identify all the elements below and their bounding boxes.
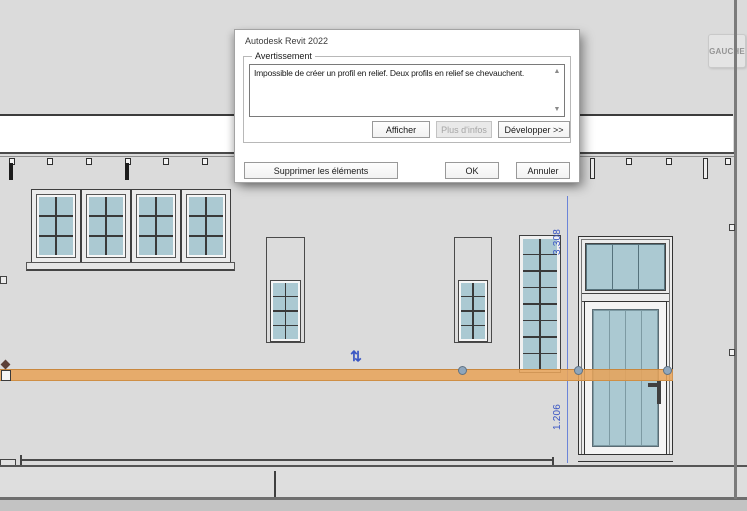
door-threshold [578,454,673,462]
sweep-endpoint-marker[interactable] [1,360,11,370]
sweep-grip-dot[interactable] [574,366,583,375]
glass-pane [89,197,105,215]
glass-pane [639,245,664,289]
glass-pane [541,305,557,320]
ok-button[interactable]: OK [445,162,499,179]
glass-pane [107,197,123,215]
line-clip [729,349,735,356]
door-transom [585,243,666,291]
glass-pane [541,321,557,336]
glass-pane [286,312,298,325]
warning-message-box[interactable]: Impossible de créer un profil en relief.… [249,64,565,117]
glass-pane [157,217,173,235]
narrow-window-right[interactable] [454,237,492,343]
window-sash [86,194,126,258]
glass-pane [189,237,205,255]
glass-pane [273,312,285,325]
warning-message-text: Impossible de créer un profil en relief.… [254,68,548,78]
glass-pane [107,237,123,255]
window-sill [26,262,235,271]
line-clip [729,224,735,231]
ground-band [0,500,747,511]
glass-pane [207,237,223,255]
window-unit[interactable] [31,189,81,263]
glass-pane [541,288,557,303]
glass-pane [541,338,557,353]
gutter-bracket[interactable] [725,158,731,165]
gutter-bracket[interactable] [202,158,208,165]
gutter-bracket[interactable] [163,158,169,165]
window-unit[interactable] [131,189,181,263]
glass-pane [57,197,73,215]
window-unit[interactable] [181,189,231,263]
plinth-divider [274,471,276,498]
warning-group-box: Avertissement Impossible de créer un pro… [243,56,571,143]
glass-pane [39,217,55,235]
glass-pane [107,217,123,235]
sweep-profile-band[interactable] [0,369,673,381]
wall-base-line [20,459,552,461]
door-handle-icon [648,383,658,387]
glass-pane [474,326,485,339]
glass-pane [273,297,285,310]
glass-pane [474,283,485,296]
glass-pane [461,312,472,325]
glass-pane [39,237,55,255]
glass-pane [461,326,472,339]
glass-pane [461,283,472,296]
warning-group-label: Avertissement [252,51,315,61]
glass-pane [523,338,539,353]
dimension-text-upper[interactable]: 3.308 [552,220,564,264]
glass-pane [523,305,539,320]
glass-pane [207,217,223,235]
glass-pane [286,326,298,339]
plus-infos-button[interactable]: Plus d'infos [436,121,492,138]
downspout-bracket[interactable] [9,163,13,180]
window-sash [270,280,301,342]
glass-pane [189,197,205,215]
glass-pane [139,237,155,255]
glass-pane [523,239,539,254]
revit-warning-dialog: Autodesk Revit 2022 Avertissement Imposs… [235,30,579,182]
plinth-band [0,467,747,498]
dimension-line [567,196,568,463]
glass-pane [523,255,539,270]
glass-pane [541,272,557,287]
door-assembly[interactable] [578,236,673,462]
glass-pane [587,245,612,289]
glass-pane [523,321,539,336]
glass-pane [157,197,173,215]
downspout-bracket[interactable] [590,158,595,179]
developper-button[interactable]: Développer >> [498,121,570,138]
glass-pane [461,297,472,310]
glass-pane [286,283,298,296]
annuler-button[interactable]: Annuler [516,162,570,179]
view-tag-gauche[interactable]: GAUCHE [708,34,746,68]
downspout-bracket[interactable] [703,158,708,179]
dimension-text-lower[interactable]: 1.206 [552,395,564,439]
window-sash [136,194,176,258]
glass-pane [613,245,638,289]
scroll-down-icon[interactable]: ▼ [552,105,562,114]
glass-pane [157,237,173,255]
glass-pane [89,237,105,255]
glass-pane [207,197,223,215]
glass-pane [523,272,539,287]
glass-pane [523,354,539,369]
flip-arrows-control[interactable]: ⇅ [348,347,364,365]
glass-pane [286,297,298,310]
scroll-up-icon[interactable]: ▲ [552,67,562,76]
section-line[interactable] [734,0,737,499]
downspout-bracket[interactable] [125,163,129,180]
gutter-bracket[interactable] [666,158,672,165]
glass-pane [57,237,73,255]
glass-pane [139,217,155,235]
gutter-bracket[interactable] [86,158,92,165]
sweep-grip-dot[interactable] [663,366,672,375]
sweep-grip-dot[interactable] [458,366,467,375]
window-sash [36,194,76,258]
glass-pane [39,197,55,215]
glass-pane [523,288,539,303]
glass-pane [273,326,285,339]
narrow-window-left[interactable] [266,237,305,343]
sweep-end-grip[interactable] [1,370,11,381]
glass-pane [541,354,557,369]
glass-pane [474,297,485,310]
glass-pane [189,217,205,235]
glass-pane [57,217,73,235]
glass-pane [89,217,105,235]
afficher-button[interactable]: Afficher [372,121,430,138]
glass-pane [139,197,155,215]
window-sash [186,194,226,258]
window-unit[interactable] [81,189,131,263]
gutter-bracket[interactable] [626,158,632,165]
glass-pane [273,283,285,296]
supprimer-elements-button[interactable]: Supprimer les éléments [244,162,398,179]
dialog-title: Autodesk Revit 2022 [245,36,328,46]
edge-marker [0,276,7,284]
window-sash [458,280,488,342]
glass-pane [474,312,485,325]
revit-drawing-area: ⇅ 3.308 1.206 GAUCHE Autodesk Revit 2022… [0,0,747,511]
gutter-bracket[interactable] [47,158,53,165]
